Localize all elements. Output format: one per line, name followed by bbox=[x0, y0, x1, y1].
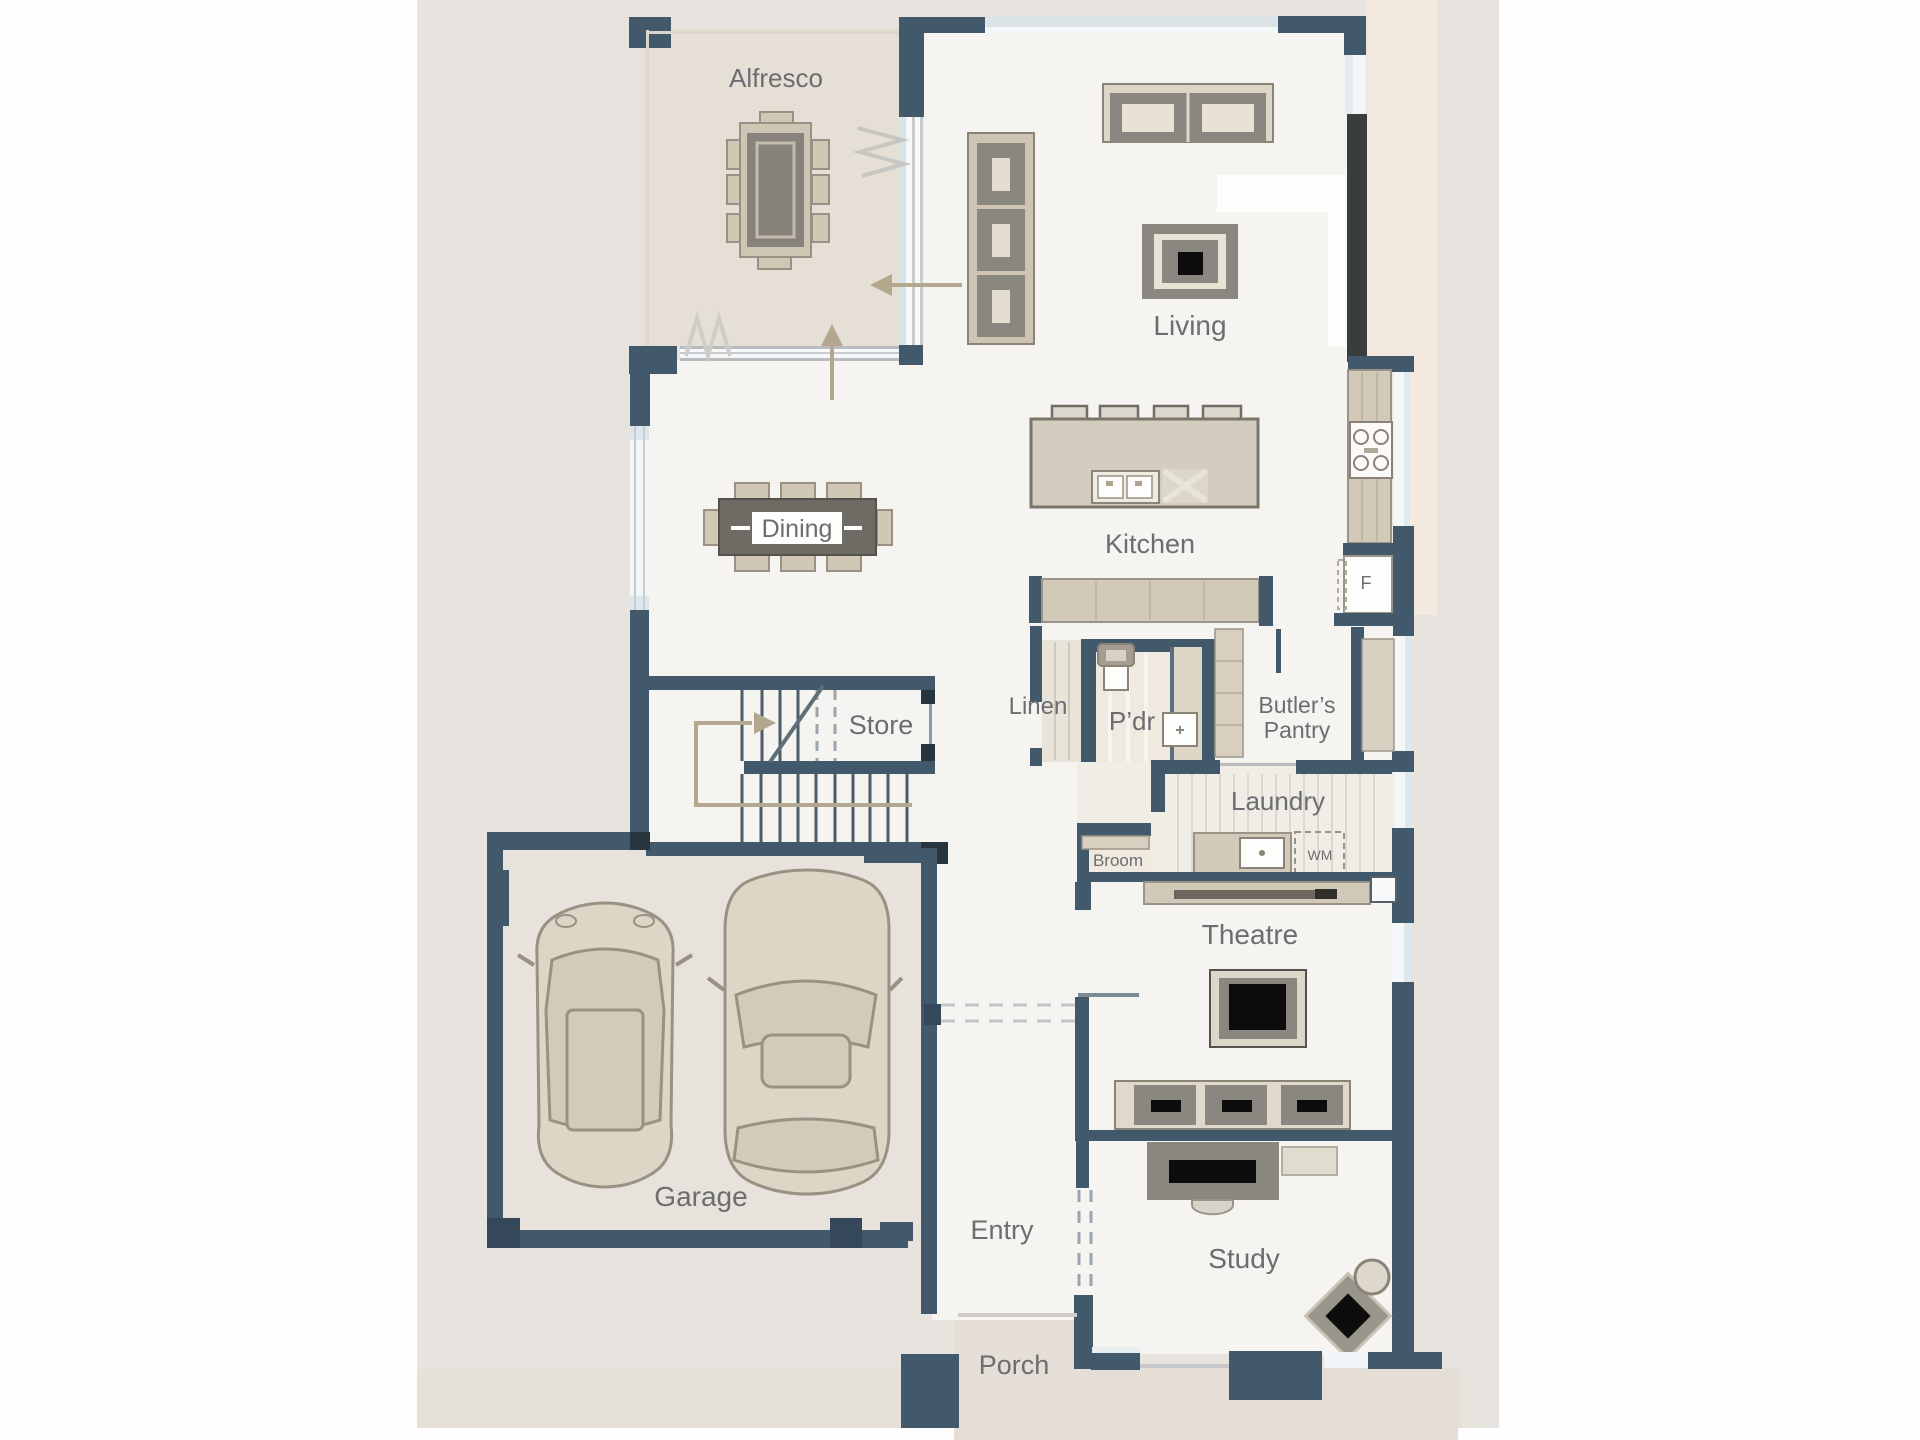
svg-text:Living: Living bbox=[1153, 310, 1226, 341]
svg-text:Broom: Broom bbox=[1093, 851, 1143, 870]
svg-text:Garage: Garage bbox=[654, 1181, 747, 1212]
svg-text:Porch: Porch bbox=[979, 1350, 1050, 1380]
svg-text:Theatre: Theatre bbox=[1202, 919, 1299, 950]
svg-text:Kitchen: Kitchen bbox=[1105, 529, 1195, 559]
svg-text:Linen: Linen bbox=[1009, 693, 1068, 720]
svg-text:Alfresco: Alfresco bbox=[729, 63, 823, 93]
svg-text:P’dr: P’dr bbox=[1109, 706, 1156, 736]
svg-text:WM: WM bbox=[1308, 847, 1333, 863]
svg-text:Dining: Dining bbox=[762, 515, 833, 543]
svg-text:Pantry: Pantry bbox=[1264, 717, 1331, 743]
svg-text:Butler’s: Butler’s bbox=[1258, 692, 1335, 718]
svg-text:F: F bbox=[1361, 573, 1372, 593]
svg-text:Laundry: Laundry bbox=[1231, 786, 1325, 816]
svg-text:Store: Store bbox=[849, 710, 914, 740]
svg-text:Entry: Entry bbox=[970, 1215, 1034, 1245]
svg-text:Study: Study bbox=[1208, 1243, 1280, 1274]
